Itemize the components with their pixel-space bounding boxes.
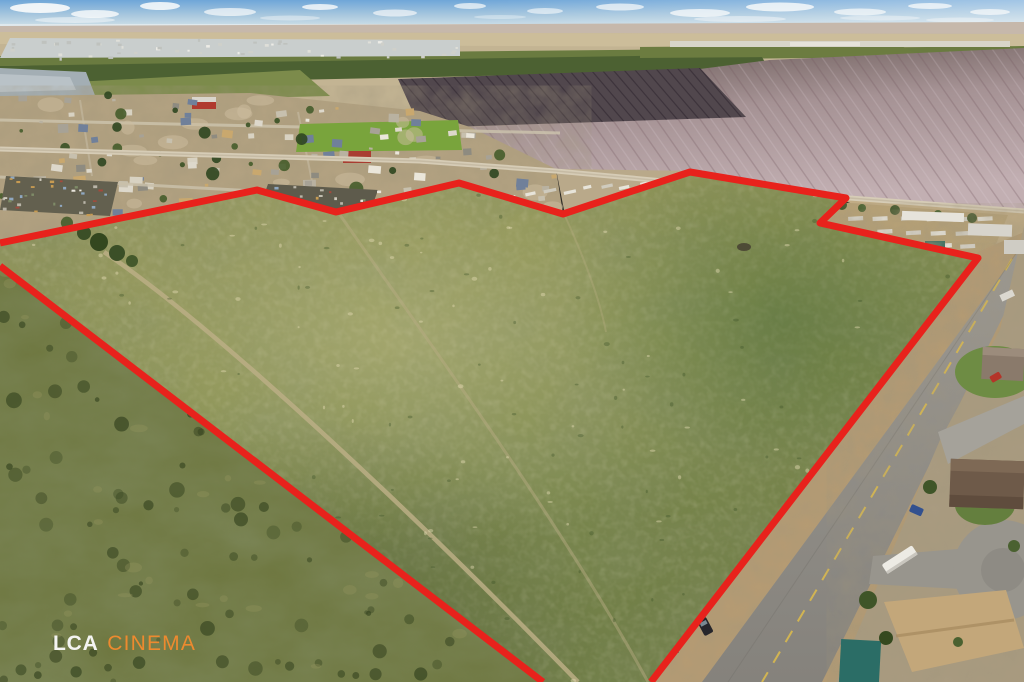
house-roof [981,347,1024,381]
tree [90,233,108,251]
sports-field [296,120,462,152]
tree [953,637,963,647]
house-roof [949,459,1024,510]
tree [126,255,138,267]
teal-fence [839,639,881,682]
debris-pile [737,243,751,251]
logo-text-secondary: CINEMA [107,632,196,655]
salvage-yard-west [0,176,118,216]
tree [109,245,125,261]
tree [923,480,937,494]
logo-text-primary: LCA [53,632,99,655]
svg-text:LCA CINEMA: LCA CINEMA [53,632,196,655]
tree [859,591,877,609]
aerial-photo: LCA CINEMA [0,0,1024,682]
watermark-logo: LCA CINEMA [53,632,196,655]
aerial-photo-stage: LCA CINEMA [0,0,1024,682]
tree [879,631,893,645]
tree [1008,540,1020,552]
